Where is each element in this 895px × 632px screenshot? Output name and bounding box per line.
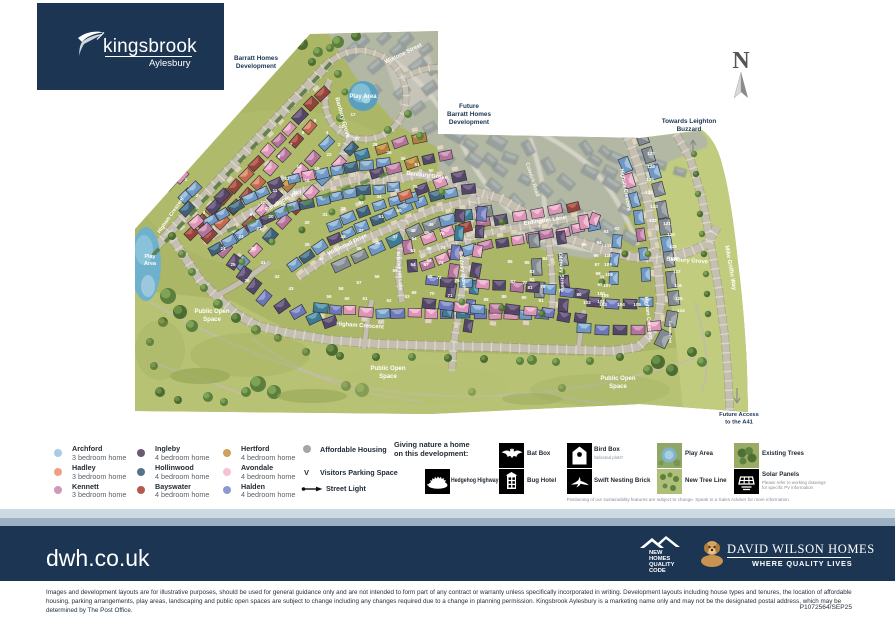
svg-text:12: 12 [284, 176, 290, 181]
svg-text:Culham Reld: Culham Reld [668, 321, 672, 343]
svg-text:51: 51 [414, 162, 420, 167]
svg-text:64: 64 [411, 236, 417, 241]
svg-text:92: 92 [614, 226, 620, 231]
svg-text:85: 85 [524, 260, 530, 265]
svg-text:52: 52 [410, 248, 416, 253]
svg-text:99: 99 [597, 282, 603, 287]
svg-text:89: 89 [501, 294, 507, 299]
svg-text:108: 108 [605, 272, 613, 277]
svg-text:2: 2 [338, 142, 341, 147]
svg-text:13: 13 [296, 164, 302, 169]
svg-text:42: 42 [274, 274, 280, 279]
svg-text:Development: Development [236, 63, 277, 70]
svg-text:110: 110 [604, 253, 612, 258]
svg-text:103: 103 [599, 302, 607, 307]
svg-text:28: 28 [372, 142, 378, 147]
svg-text:115: 115 [675, 296, 683, 301]
svg-text:93: 93 [603, 229, 609, 234]
svg-text:20: 20 [268, 214, 274, 219]
svg-text:106: 106 [601, 293, 609, 298]
svg-text:Area: Area [144, 261, 157, 267]
svg-text:23: 23 [238, 234, 244, 239]
svg-text:29: 29 [386, 150, 392, 155]
svg-text:32: 32 [340, 206, 346, 211]
svg-text:124: 124 [645, 190, 653, 195]
svg-text:to the A41: to the A41 [725, 419, 754, 425]
svg-text:126: 126 [647, 164, 655, 169]
svg-text:26: 26 [244, 278, 250, 283]
svg-text:78: 78 [540, 284, 546, 289]
svg-text:62: 62 [386, 298, 392, 303]
svg-text:17: 17 [350, 112, 356, 117]
svg-text:68: 68 [427, 274, 433, 279]
svg-text:88: 88 [483, 297, 489, 302]
svg-text:127: 127 [647, 151, 655, 156]
svg-text:16: 16 [304, 178, 310, 183]
svg-text:34: 34 [376, 194, 382, 199]
svg-text:22: 22 [326, 152, 332, 157]
svg-text:117: 117 [673, 269, 681, 274]
svg-text:73: 73 [438, 260, 444, 265]
svg-text:111: 111 [604, 243, 612, 248]
svg-text:46: 46 [374, 240, 380, 245]
svg-text:61: 61 [362, 296, 368, 301]
svg-text:Play Area: Play Area [349, 94, 377, 100]
svg-text:11: 11 [273, 188, 278, 193]
svg-text:97: 97 [594, 262, 600, 267]
svg-text:Public Open: Public Open [600, 376, 635, 382]
svg-text:81: 81 [527, 285, 533, 290]
svg-text:24: 24 [220, 246, 226, 251]
svg-text:48: 48 [410, 228, 416, 233]
svg-text:Public Open: Public Open [370, 366, 405, 372]
svg-text:Space: Space [379, 374, 397, 380]
svg-text:30: 30 [304, 220, 310, 225]
svg-text:35: 35 [394, 188, 400, 193]
svg-text:109: 109 [604, 262, 612, 267]
svg-text:121: 121 [663, 221, 671, 226]
svg-text:66: 66 [426, 246, 432, 251]
svg-text:56: 56 [374, 274, 380, 279]
svg-text:3: 3 [203, 210, 206, 215]
svg-text:82: 82 [529, 277, 535, 282]
svg-text:27: 27 [354, 136, 360, 141]
svg-text:Future Access: Future Access [719, 412, 759, 418]
svg-text:54: 54 [410, 262, 416, 267]
svg-text:98: 98 [595, 271, 601, 276]
svg-text:Public Open: Public Open [194, 309, 229, 315]
svg-text:31: 31 [322, 212, 328, 217]
svg-text:116: 116 [674, 283, 682, 288]
svg-text:37: 37 [358, 228, 364, 233]
svg-text:CODE: CODE [649, 568, 666, 574]
svg-text:41: 41 [260, 260, 266, 265]
svg-text:Play: Play [144, 254, 155, 260]
svg-text:Barratt Homes: Barratt Homes [234, 55, 278, 62]
svg-text:59: 59 [326, 294, 332, 299]
svg-text:33: 33 [358, 200, 364, 205]
svg-text:Barratt Homes: Barratt Homes [447, 111, 491, 118]
svg-text:47: 47 [392, 234, 398, 239]
svg-text:44: 44 [318, 256, 324, 261]
svg-text:9: 9 [250, 212, 253, 217]
svg-text:87: 87 [510, 279, 516, 284]
svg-text:65: 65 [424, 230, 430, 235]
svg-text:120: 120 [667, 232, 675, 237]
svg-text:91: 91 [538, 298, 544, 303]
svg-text:45: 45 [356, 246, 362, 251]
svg-text:57: 57 [356, 280, 362, 285]
svg-text:Future: Future [459, 103, 479, 110]
svg-text:2: 2 [196, 193, 199, 198]
svg-text:63: 63 [404, 294, 410, 299]
svg-text:67: 67 [423, 262, 429, 267]
svg-text:75: 75 [454, 278, 460, 283]
svg-text:1: 1 [185, 177, 188, 182]
svg-text:Towards Leighton: Towards Leighton [662, 118, 717, 125]
svg-text:60: 60 [344, 296, 350, 301]
svg-text:119: 119 [669, 244, 677, 249]
svg-text:69: 69 [411, 290, 417, 295]
svg-text:95: 95 [581, 242, 587, 247]
svg-text:Space: Space [609, 384, 627, 390]
svg-text:72: 72 [436, 275, 442, 280]
svg-text:94: 94 [596, 240, 602, 245]
svg-text:5: 5 [314, 118, 317, 123]
svg-text:105: 105 [633, 302, 641, 307]
svg-text:76: 76 [439, 231, 445, 236]
svg-text:30: 30 [400, 156, 406, 161]
svg-text:51: 51 [378, 214, 384, 219]
svg-text:50: 50 [396, 208, 402, 213]
svg-text:70: 70 [429, 291, 435, 296]
svg-text:36: 36 [412, 184, 418, 189]
svg-text:49: 49 [428, 222, 434, 227]
svg-text:90: 90 [521, 295, 527, 300]
svg-text:74: 74 [440, 245, 446, 250]
svg-text:Development: Development [449, 119, 490, 126]
svg-text:Buzzard: Buzzard [677, 126, 702, 133]
svg-text:25: 25 [230, 262, 236, 267]
svg-text:7: 7 [290, 142, 293, 147]
svg-text:83: 83 [529, 269, 535, 274]
svg-text:96: 96 [593, 253, 599, 258]
svg-text:21: 21 [256, 226, 262, 231]
svg-text:10: 10 [260, 200, 266, 205]
svg-text:86: 86 [507, 259, 513, 264]
svg-text:123: 123 [650, 204, 658, 209]
svg-text:38: 38 [340, 234, 346, 239]
svg-text:43: 43 [288, 286, 294, 291]
svg-text:71: 71 [447, 293, 453, 298]
svg-text:6: 6 [302, 130, 305, 135]
svg-text:107: 107 [603, 283, 611, 288]
svg-text:104: 104 [617, 302, 625, 307]
svg-text:4: 4 [326, 130, 329, 135]
svg-text:102: 102 [583, 300, 591, 305]
svg-text:122: 122 [649, 218, 657, 223]
svg-text:125: 125 [646, 177, 654, 182]
svg-text:Wistone Street: Wistone Street [169, 109, 202, 142]
svg-text:114: 114 [677, 308, 685, 313]
svg-text:84: 84 [542, 256, 548, 261]
svg-text:8: 8 [278, 154, 281, 159]
svg-text:80: 80 [576, 292, 582, 297]
svg-text:40: 40 [250, 246, 256, 251]
svg-text:N: N [732, 48, 750, 74]
svg-text:Space: Space [203, 317, 221, 323]
svg-text:15: 15 [314, 166, 320, 171]
svg-text:58: 58 [338, 286, 344, 291]
svg-text:39: 39 [304, 242, 310, 247]
